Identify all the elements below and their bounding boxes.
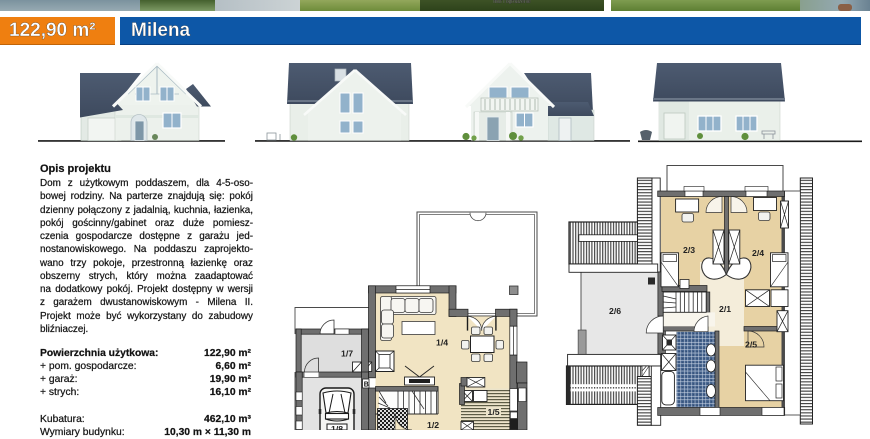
svg-text:1/4: 1/4	[436, 338, 448, 348]
svg-text:1/7: 1/7	[341, 349, 353, 359]
svg-text:2/4: 2/4	[752, 248, 764, 258]
svg-text:1/5: 1/5	[488, 407, 500, 417]
svg-text:2/5: 2/5	[745, 340, 757, 350]
svg-text:2/6: 2/6	[609, 306, 621, 316]
svg-text:1/8: 1/8	[331, 424, 343, 430]
svg-text:B: B	[364, 382, 369, 389]
svg-text:2/3: 2/3	[683, 245, 695, 255]
svg-text:1/2: 1/2	[427, 420, 439, 430]
svg-text:2/1: 2/1	[719, 304, 731, 314]
